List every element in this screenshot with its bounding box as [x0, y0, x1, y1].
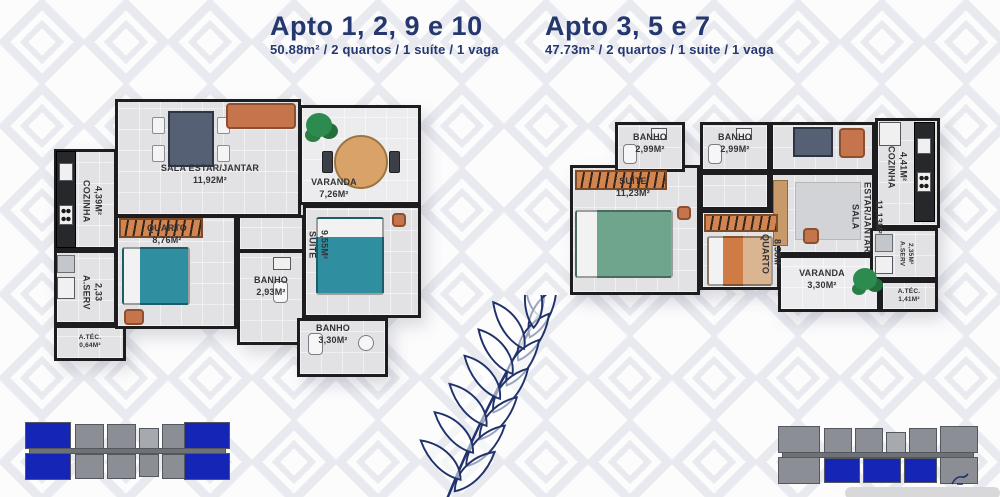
keyplan-unit [855, 428, 883, 453]
keyplan-unit-highlight [184, 453, 230, 480]
keyplan-unit-highlight [25, 422, 71, 449]
right-plan-titleblock: Apto 3, 5 e 7 47.73m² / 2 quartos / 1 su… [545, 12, 774, 57]
keyplan-unit [778, 457, 820, 484]
label-banho2-right: BANHO 2,99M² [704, 132, 766, 155]
poster-canvas: Apto 1, 2, 9 e 10 50.88m² / 2 quartos / … [0, 0, 1000, 497]
keyplan-unit [107, 454, 136, 479]
keyplan-unit-highlight [25, 453, 71, 480]
pouf [124, 309, 144, 325]
label-sala-right: SALA ESTAR/JANTAR 11,13M² [849, 176, 884, 258]
right-plan-title: Apto 3, 5 e 7 [545, 12, 774, 40]
stove [917, 172, 931, 192]
right-plan-subtitle: 47.73m² / 2 quartos / 1 suite / 1 vaga [545, 42, 774, 57]
stove [59, 205, 73, 225]
balcony-chair [322, 151, 333, 173]
label-atec-right: A.TÉC. 1,41M² [887, 288, 931, 305]
keyplan-unit [940, 426, 978, 453]
label-cozinha-right: COZINHA 4,41M² [885, 136, 908, 198]
label-aserv-left: A.SERV 2,33 [80, 263, 103, 321]
keyplan-unit [139, 454, 159, 477]
left-plan-title: Apto 1, 2, 9 e 10 [270, 12, 499, 40]
floor-plan-right: BANHO 2,99M² BANHO 2,99M² SUÍTE 11,23M² … [565, 110, 950, 338]
sofa [226, 103, 296, 129]
laundry-tank [57, 277, 75, 299]
laundry-tank [875, 256, 893, 274]
keyplan-unit [75, 454, 104, 479]
keyplan-core [139, 428, 159, 449]
armchair-set [793, 127, 833, 157]
keyplan-core [886, 432, 906, 453]
armchair [839, 128, 865, 158]
label-banho2-left: BANHO 3,30M² [302, 323, 364, 346]
keyplan-corridor [29, 448, 226, 454]
fern-illustration [415, 295, 585, 497]
keyplan-left [25, 420, 230, 482]
dining-chair [217, 145, 230, 162]
label-varanda-left: VARANDA 7,26M² [302, 177, 366, 200]
label-sala-left: SALA ESTAR/JANTAR 11,92M² [158, 163, 262, 186]
keyplan-unit [75, 424, 104, 449]
bottom-bar [845, 487, 1000, 497]
label-quarto-left: QUARTO 8,76M² [132, 223, 202, 246]
label-banho1-right: BANHO 2,99M² [619, 132, 681, 155]
floor-plan-left: SALA ESTAR/JANTAR 11,92M² VARANDA 7,26M²… [40, 85, 430, 397]
double-bed-suite [575, 210, 673, 278]
keyplan-unit [909, 428, 937, 453]
keyplan-unit-highlight [824, 458, 860, 483]
keyplan-unit [824, 428, 852, 453]
nightstand [677, 206, 691, 220]
label-atec-left: A.TÉC. 0,64M² [58, 334, 122, 351]
kitchen-sink [59, 163, 73, 181]
label-aserv-right: A.SERV 2,35M² [897, 230, 914, 278]
label-suite-left: SUÍTE 9,55M² [306, 213, 329, 277]
label-varanda-right: VARANDA 3,30M² [787, 268, 857, 291]
balcony-chair [389, 151, 400, 173]
label-quarto-right: QUARTO 8,58M² [759, 220, 782, 288]
kitchen-sink [917, 138, 931, 154]
pouf [803, 228, 819, 244]
label-suite-right: SUÍTE 11,23M² [593, 176, 673, 199]
left-plan-subtitle: 50.88m² / 2 quartos / 1 suíte / 1 vaga [270, 42, 499, 57]
keyplan-unit-highlight [184, 422, 230, 449]
dining-chair [152, 145, 165, 162]
left-plan-titleblock: Apto 1, 2, 9 e 10 50.88m² / 2 quartos / … [270, 12, 499, 57]
keyplan-right [778, 424, 978, 484]
small-glyph-icon [950, 472, 970, 486]
bathroom-sink [273, 257, 291, 270]
label-banho1-left: BANHO 2,93M² [240, 275, 302, 298]
washer [57, 255, 75, 273]
dining-table [168, 111, 214, 167]
keyplan-corridor [782, 452, 974, 458]
room-hall-left [237, 215, 305, 252]
dining-chair [152, 117, 165, 134]
plant-icon [306, 113, 332, 137]
keyplan-unit [107, 424, 136, 449]
keyplan-unit [778, 426, 820, 453]
label-cozinha-left: COZINHA 4,39M² [80, 165, 103, 237]
keyplan-unit-highlight [904, 458, 937, 483]
double-bed-quarto [122, 247, 190, 305]
keyplan-unit-highlight [863, 458, 901, 483]
room-hall-right [700, 172, 770, 210]
nightstand [392, 213, 406, 227]
